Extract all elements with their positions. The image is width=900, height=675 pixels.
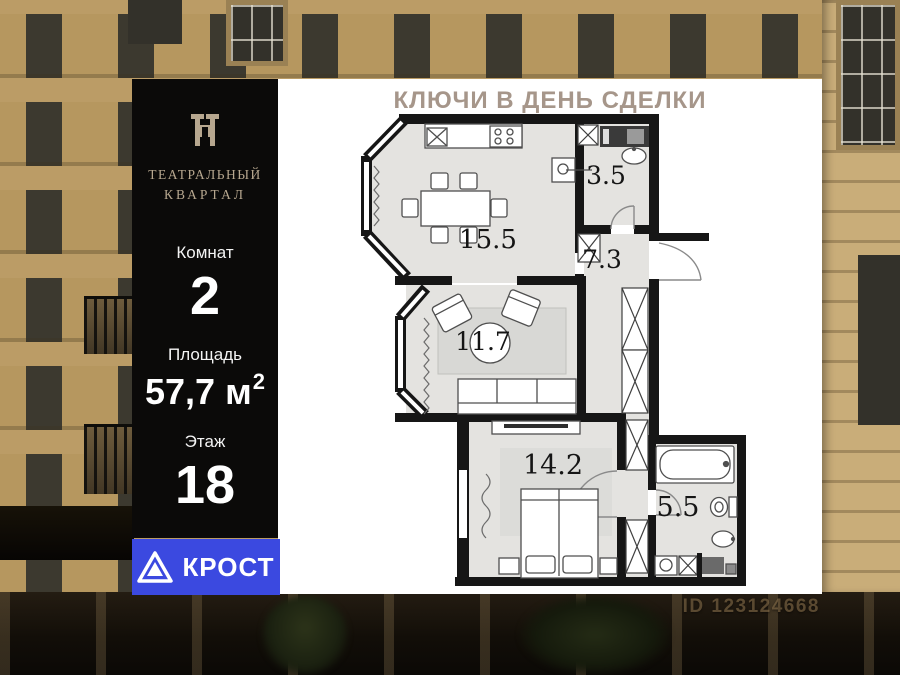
area-value: 57,7 м2: [145, 373, 265, 410]
area-number: 57,7 м: [145, 371, 252, 412]
window-top-a: [128, 0, 182, 44]
floor-value: 18: [175, 458, 235, 512]
area-label: Площадь: [168, 345, 242, 365]
rooms-label: Комнат: [176, 243, 233, 263]
balcony-railing-2: [84, 296, 134, 354]
area-living: 11.7: [455, 327, 511, 356]
entrance-canopy: [0, 506, 134, 560]
specs-panel: ТЕАТРАЛЬНЫЙ КВАРТАЛ Комнат 2 Площадь 57,…: [132, 79, 278, 538]
area-kitchen: 15.5: [459, 225, 517, 255]
krost-triangle-icon: [137, 550, 173, 584]
area-bathroom: 5.5: [657, 492, 700, 523]
floorplan-drawing: 15.5 3.5 7.3 11.7 14.2 5.5: [278, 79, 822, 594]
area-guest-bathroom: 3.5: [586, 161, 626, 190]
developer-badge: КРОСТ: [132, 539, 280, 595]
rooms-value: 2: [190, 269, 220, 323]
theatre-quarter-monogram-icon: [183, 105, 227, 155]
developer-name: КРОСТ: [182, 552, 274, 583]
window-top-right: [836, 0, 900, 150]
floor-label: Этаж: [185, 432, 226, 452]
listing-card: КЛЮЧИ В ДЕНЬ СДЕЛКИ: [0, 0, 900, 675]
tree: [262, 596, 348, 675]
listing-id-watermark: ID 123124668: [640, 596, 820, 618]
window-top-b: [226, 0, 288, 66]
floorplan-panel: КЛЮЧИ В ДЕНЬ СДЕЛКИ: [278, 79, 822, 594]
area-hallway: 7.3: [582, 245, 622, 274]
area-superscript: 2: [253, 369, 265, 394]
project-name-line1: ТЕАТРАЛЬНЫЙ: [148, 167, 262, 183]
project-name-line2: КВАРТАЛ: [164, 187, 246, 203]
area-bedroom: 14.2: [523, 450, 583, 481]
balcony-railing: [84, 424, 134, 494]
window-right: [858, 255, 900, 425]
